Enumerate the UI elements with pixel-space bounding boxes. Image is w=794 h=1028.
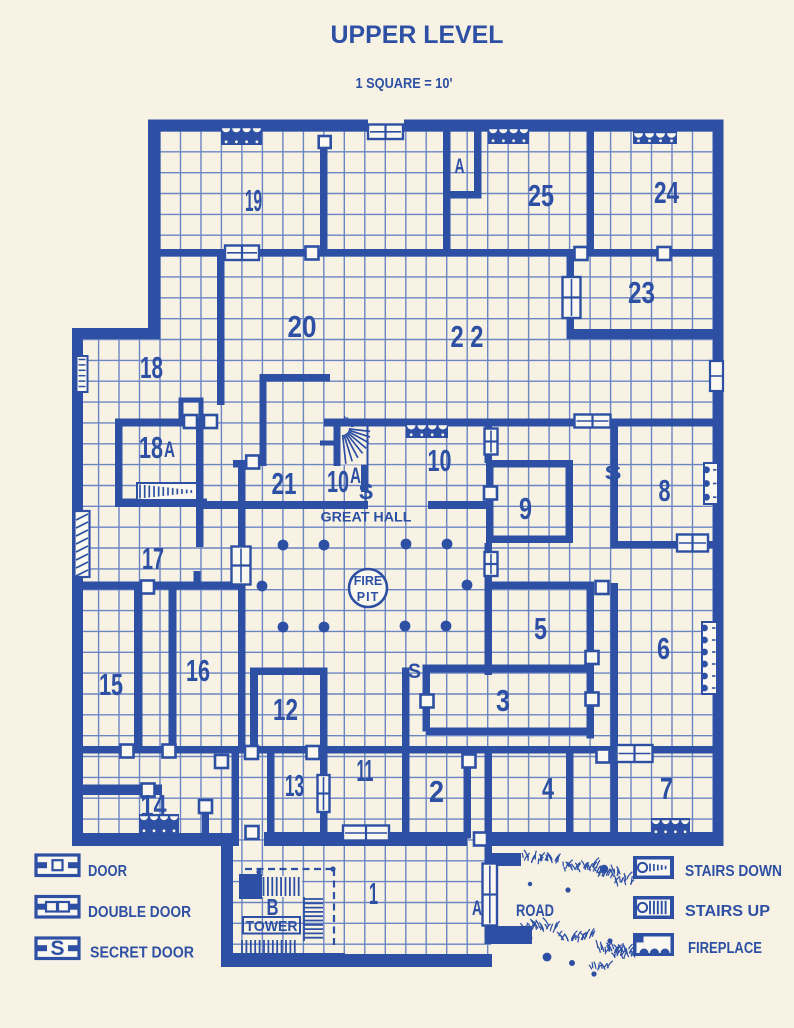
svg-text:S: S xyxy=(50,937,64,960)
svg-text:9: 9 xyxy=(519,491,532,526)
svg-text:25: 25 xyxy=(528,178,554,213)
svg-text:A: A xyxy=(350,463,361,488)
svg-text:TOWER: TOWER xyxy=(246,918,298,935)
svg-text:5: 5 xyxy=(534,611,547,646)
svg-text:21: 21 xyxy=(272,466,297,501)
svg-text:UPPER LEVEL: UPPER LEVEL xyxy=(331,21,504,49)
svg-text:20: 20 xyxy=(288,309,317,344)
svg-text:23: 23 xyxy=(628,275,655,310)
svg-text:$: $ xyxy=(359,479,373,505)
svg-text:STAIRS UP: STAIRS UP xyxy=(685,903,770,920)
svg-text:S: S xyxy=(408,660,421,683)
svg-text:STAIRS DOWN: STAIRS DOWN xyxy=(685,863,782,880)
svg-text:S: S xyxy=(605,463,622,485)
svg-text:14: 14 xyxy=(141,788,168,823)
svg-text:A: A xyxy=(455,155,465,178)
svg-text:2: 2 xyxy=(429,774,444,809)
svg-text:SECRET DOOR: SECRET DOOR xyxy=(90,945,194,962)
svg-text:10: 10 xyxy=(428,443,452,478)
svg-text:6: 6 xyxy=(657,631,670,666)
svg-text:15: 15 xyxy=(99,667,123,702)
svg-text:3: 3 xyxy=(496,683,510,718)
svg-text:10: 10 xyxy=(327,464,349,499)
svg-text:DOOR: DOOR xyxy=(88,863,127,880)
svg-text:17: 17 xyxy=(142,541,164,576)
svg-text:13: 13 xyxy=(285,768,304,803)
svg-text:2 2: 2 2 xyxy=(451,319,484,354)
svg-text:8: 8 xyxy=(659,473,671,508)
svg-text:ROAD: ROAD xyxy=(516,902,554,920)
svg-text:18: 18 xyxy=(139,430,163,465)
svg-text:19: 19 xyxy=(245,183,262,218)
svg-text:24: 24 xyxy=(654,175,680,210)
svg-text:1 SQUARE = 10': 1 SQUARE = 10' xyxy=(356,76,453,92)
svg-text:12: 12 xyxy=(273,692,298,727)
svg-text:A: A xyxy=(472,897,482,920)
svg-text:DOUBLE DOOR: DOUBLE DOOR xyxy=(88,904,191,921)
svg-text:11: 11 xyxy=(357,753,374,788)
svg-text:1: 1 xyxy=(369,876,378,911)
svg-text:4: 4 xyxy=(542,771,555,806)
svg-text:FIREPLACE: FIREPLACE xyxy=(688,940,762,957)
svg-text:GREAT HALL: GREAT HALL xyxy=(321,510,412,526)
svg-text:FIRE: FIRE xyxy=(354,574,382,588)
svg-text:7: 7 xyxy=(660,771,673,806)
svg-text:PIT: PIT xyxy=(357,590,379,604)
svg-text:16: 16 xyxy=(186,653,210,688)
svg-text:A: A xyxy=(164,437,175,462)
svg-text:18: 18 xyxy=(140,350,163,385)
